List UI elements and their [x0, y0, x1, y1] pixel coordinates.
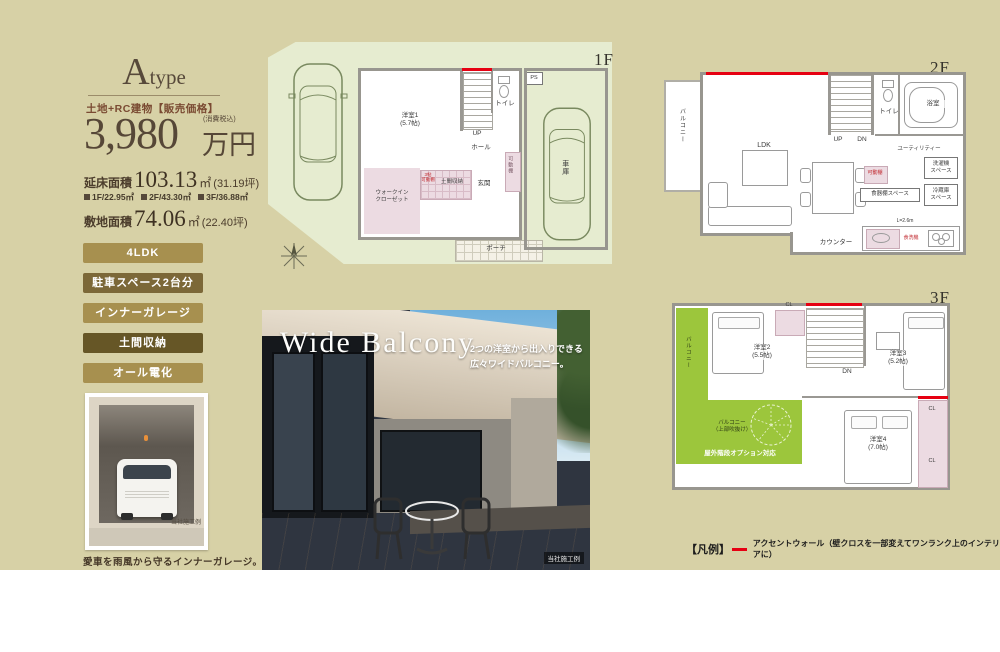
floor-area-row: 延床面積 103.13 ㎡ (31.19坪)	[84, 167, 264, 193]
accent-wall-3f-closet	[918, 396, 948, 399]
badge-doma-storage: 土間収納	[83, 333, 203, 353]
label-outdoor-stair-option-3f: 屋外階段オプション対応	[682, 450, 798, 458]
price-block: 3,980 (消費税込) 万円	[84, 108, 274, 156]
bottom-white-strip	[0, 570, 1000, 652]
square-bullet-icon	[84, 194, 90, 200]
floor-breakdown-item: 2F/43.30㎡	[141, 191, 191, 203]
land-area-tsubo: (22.40坪)	[202, 214, 248, 230]
label-wic-1f: ウォークイン クローゼット	[364, 190, 420, 204]
label-fridge-2f: 冷蔵庫 スペース	[930, 188, 951, 202]
toilet-bowl-2f	[883, 89, 893, 102]
label-room1-1f: 洋室1 (5.7帖)	[386, 112, 434, 128]
photo-credit: 当社施工例	[544, 552, 585, 564]
photo-right-wall	[511, 398, 557, 512]
square-bullet-icon	[198, 194, 204, 200]
label-washer-2f: 洗濯機 スペース	[930, 161, 951, 175]
washer-space-2f: 洗濯機 スペース	[924, 157, 958, 179]
dining-table-2f	[812, 162, 854, 214]
compass-icon	[280, 242, 308, 270]
flyer-page: Atype 土地+RC建物【販売価格】 3,980 (消費税込) 万円 延床面積…	[0, 0, 1000, 652]
label-up-2f: UP	[828, 136, 848, 144]
label-cl-top-3f: CL	[775, 302, 803, 309]
floor-area-tsubo: (31.19坪)	[213, 175, 259, 191]
photo-tree-leaves	[557, 310, 590, 453]
label-room2-3f: 洋室2 (5.5帖)	[742, 344, 782, 360]
sink-basin-2f	[872, 233, 890, 243]
sofa-side-2f	[708, 182, 728, 208]
price-value: 3,980	[84, 108, 178, 159]
floor-breakdown-row: 1F/22.95㎡ 2F/43.30㎡ 3F/36.88㎡	[84, 191, 274, 203]
fridge-space-2f: 冷蔵庫 スペース	[924, 184, 958, 206]
label-room3-3f: 洋室3 (5.2帖)	[878, 350, 918, 366]
desk-room3-3f	[876, 332, 900, 350]
photo-window-glass	[321, 352, 368, 512]
plan-type-title: Atype	[88, 50, 220, 94]
cupboard-space-2f: 食器棚スペース	[860, 188, 920, 202]
badge-inner-garage: インナーガレージ	[83, 303, 203, 323]
chair-2f	[800, 168, 811, 183]
stairs-3f	[806, 308, 864, 368]
chair-2f	[800, 192, 811, 207]
label-cl-right-top-3f: CL	[918, 406, 946, 413]
accent-wall-legend-icon	[732, 548, 747, 551]
closet-right-3f	[918, 400, 948, 488]
label-up-1f: UP	[466, 130, 488, 138]
toilet-bowl-1f	[499, 85, 509, 98]
stairs-2f	[831, 75, 871, 132]
bed-room2-3f	[712, 312, 764, 374]
rug-2f	[742, 150, 788, 186]
badge-parking: 駐車スペース2台分	[83, 273, 203, 293]
badge-4ldk: 4LDK	[83, 243, 203, 263]
label-toilet-1f: トイレ	[492, 100, 518, 108]
garage-photo: 当社施工例	[85, 393, 208, 550]
label-balcony-side-3f: バルコニー	[684, 336, 691, 369]
garage-floor	[89, 528, 204, 546]
garage-photo-image: 当社施工例	[89, 397, 204, 546]
label-doma-1f: 土間収納	[436, 179, 468, 186]
legend-title: 【凡例】	[686, 541, 726, 557]
closet-top-3f	[775, 310, 805, 336]
floor-breakdown-item: 3F/36.88㎡	[198, 191, 248, 203]
accent-wall-3f-stairs	[806, 303, 862, 306]
floor-area-unit: ㎡	[199, 174, 211, 191]
land-area-value: 74.06	[134, 206, 186, 232]
plan-type-letter: A	[122, 51, 149, 93]
label-cupboard-2f: 食器棚スペース	[871, 191, 909, 198]
label-hall-1f: ホール	[466, 144, 496, 152]
car-outline-icon	[288, 60, 348, 204]
floor-area-value: 103.13	[134, 167, 197, 193]
label-dishwasher-2f: 食洗機	[900, 235, 922, 241]
label-shelf-1f: 3帖 可動棚	[420, 172, 436, 183]
label-bath-2f: 浴室	[918, 100, 948, 108]
stove-2f	[928, 230, 954, 247]
toilet-2f	[882, 80, 894, 88]
label-porch-1f: ポーチ	[478, 245, 514, 253]
label-utility-2f: ユーティリティー	[890, 146, 948, 153]
accent-wall-2f	[706, 72, 828, 75]
title-divider	[88, 95, 220, 96]
label-shelf-2f: 可動棚	[864, 170, 886, 176]
floor-area-label: 延床面積	[84, 174, 132, 191]
label-dn-2f: DN	[852, 136, 872, 144]
legend-item: アクセントウォール（壁クロスを一部変えてワンランク上のインテリアに）	[753, 538, 1000, 560]
floor-breakdown-item: 1F/22.95㎡	[84, 191, 134, 203]
plan-type-word: type	[150, 65, 186, 89]
photo-desc: 2つの洋室から出入りできる 広々ワイドバルコニー。	[470, 342, 583, 373]
photo-title: Wide Balcony	[280, 326, 475, 360]
label-counter-2f: カウンター	[812, 239, 860, 247]
label-kitchen-length-2f: L=2.6m	[890, 218, 920, 224]
balcony-photo: Wide Balcony 2つの洋室から出入りできる 広々ワイドバルコニー。 当…	[262, 310, 590, 570]
photo-window-glass	[272, 352, 315, 512]
label-storage-1f: 可動棚	[507, 156, 513, 174]
garage-photo-credit: 当社施工例	[171, 517, 201, 526]
accent-wall-1f	[462, 68, 492, 71]
spiral-stair-icon	[748, 402, 794, 448]
label-cl-right-bottom-3f: CL	[918, 458, 946, 465]
land-area-unit: ㎡	[188, 213, 200, 230]
legend: 【凡例】 アクセントウォール（壁クロスを一部変えてワンランク上のインテリアに）	[686, 538, 1000, 560]
floor-label-1f: 1F	[594, 50, 614, 70]
square-bullet-icon	[141, 194, 147, 200]
badge-all-electric: オール電化	[83, 363, 203, 383]
land-area-row: 敷地面積 74.06 ㎡ (22.40坪)	[84, 206, 264, 232]
label-garage-1f: 車庫	[560, 160, 569, 176]
price-unit: 万円	[202, 123, 256, 162]
garage-van	[117, 459, 177, 517]
sofa-2f	[708, 206, 792, 226]
label-balcony-2f: バルコニー	[677, 108, 685, 143]
label-entrance-1f: 玄関	[470, 180, 498, 188]
land-area-label: 敷地面積	[84, 213, 132, 230]
photo-table-chairs	[367, 471, 497, 566]
toilet-1f	[498, 76, 510, 84]
garage-ceiling-light	[144, 435, 148, 441]
stairs-1f	[463, 72, 493, 130]
label-dn-3f: DN	[836, 368, 858, 376]
garage-caption: 愛車を雨風から守るインナーガレージ。	[83, 554, 263, 568]
label-room4-3f: 洋室4 (7.0帖)	[856, 436, 900, 452]
